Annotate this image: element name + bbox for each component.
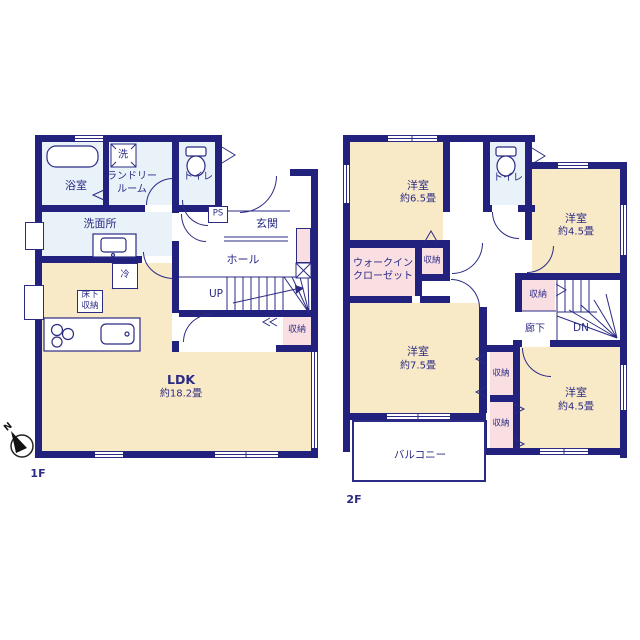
label-closet-wic: 収納 [423, 255, 440, 266]
label-corridor: 廊下 [525, 323, 545, 336]
window-flag-toilet-2f [532, 148, 545, 164]
window-flag-toilet-1f [222, 147, 235, 163]
stairs-2f-treads [557, 280, 597, 312]
label-fridge: 冷 [120, 270, 129, 282]
label-underfloor: 床下 収納 [81, 290, 98, 312]
label-washroom: 洗面所 [84, 217, 117, 231]
label-closet-mid2: 収納 [492, 418, 509, 429]
shoe-cabinet [296, 228, 311, 263]
stairs-1f-fan [284, 277, 309, 313]
label-toilet-1f: トイレ [183, 171, 213, 184]
label-balcony: バルコニー [394, 449, 446, 463]
toilet-icon-1f [186, 147, 206, 156]
compass-icon [11, 431, 33, 457]
label-room65: 洋室 [407, 179, 429, 193]
label-dn: DN [573, 322, 589, 336]
label-ldk-size: 約18.2畳 [160, 388, 202, 401]
label-up: UP [209, 288, 223, 302]
label-room75: 洋室 [407, 345, 429, 359]
door-mark-closet-mid2 [514, 404, 524, 414]
label-toilet-2f: トイレ [493, 172, 523, 185]
label-room75-size: 約7.5畳 [400, 360, 436, 373]
door-mark-closet-mid1 [476, 387, 486, 397]
label-room65-size: 約6.5畳 [400, 193, 436, 206]
door-mark-closet-1f [263, 318, 270, 326]
door-mark-bath [93, 190, 104, 200]
door-mark-closet-1f [270, 318, 277, 326]
stove-burner [52, 325, 63, 336]
label-hall: ホール [227, 253, 260, 267]
label-bathroom: 浴室 [65, 179, 87, 193]
plan-linework [0, 0, 640, 640]
label-washer: 洗 [118, 149, 128, 162]
label-wic: ウォークイン クローゼット [353, 257, 413, 283]
label-closet-mid1: 収納 [492, 368, 509, 379]
label-entrance: 玄関 [256, 217, 278, 231]
label-room45a-size: 約4.5畳 [558, 226, 594, 239]
label-ps: PS [213, 208, 224, 219]
label-floor2: 2F [346, 493, 361, 507]
label-closet-1f: 収納 [288, 325, 306, 337]
bathtub-icon [47, 146, 98, 167]
floorplan-canvas: 浴室 洗 ランドリー ルーム トイレ 洗面所 PS 玄関 ホール UP 冷 床下… [0, 0, 640, 640]
label-laundry: ランドリー ルーム [107, 170, 157, 196]
label-ldk: LDK [167, 372, 195, 388]
label-floor1: 1F [30, 467, 45, 481]
label-closet-stairs: 収納 [529, 290, 547, 302]
label-room45b: 洋室 [565, 386, 587, 400]
door-mark-closet-mid1 [476, 354, 486, 364]
label-room45b-size: 約4.5畳 [558, 401, 594, 414]
label-room45a: 洋室 [565, 212, 587, 226]
toilet-icon-2f [496, 147, 516, 156]
door-mark-closet-wic [424, 231, 438, 243]
stove-burner [52, 337, 62, 347]
door-mark-closet-mid2 [514, 439, 524, 449]
stove-burner [63, 329, 74, 340]
